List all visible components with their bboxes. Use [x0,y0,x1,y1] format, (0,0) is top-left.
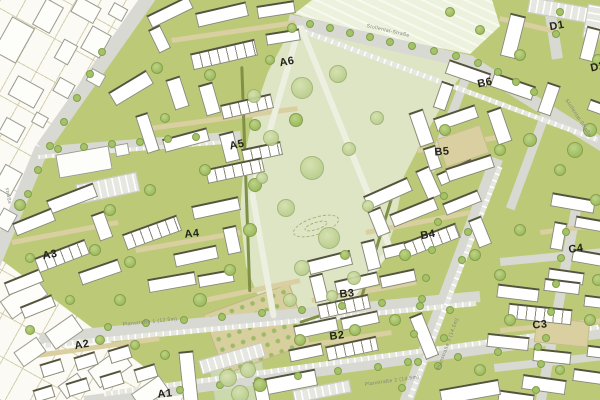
street-tree [366,33,374,41]
block-tree [584,314,596,326]
block-label-c3: C3 [532,318,548,331]
block-tree [95,335,105,345]
street-tree [428,246,436,254]
planned-building [587,99,600,118]
block-tree [25,253,35,263]
planned-building [146,0,193,28]
existing-building [70,0,101,24]
park-tree [362,200,374,212]
street-tree [378,299,386,307]
planned-building [583,295,600,310]
street-tree [24,190,32,198]
street-tree [512,78,520,86]
park-tree [219,369,237,387]
street-tree [54,145,62,153]
block-tree [592,274,600,286]
street-tree [298,306,306,314]
street-tree [530,88,538,96]
street-tree [60,118,68,126]
planned-building [191,196,241,220]
block-tree [590,194,600,206]
block-label-b6: B6 [476,76,493,91]
street-tree [386,38,394,46]
street-tree [404,358,412,366]
block-tree [399,249,411,261]
street-tree [474,59,482,67]
street-tree [334,367,342,375]
street-tree [258,309,266,317]
block-label-b2: B2 [329,329,346,343]
park-tree [294,260,310,276]
block-tree [474,364,486,376]
block-label-d1: D1 [549,19,566,33]
park-tree [342,142,356,156]
block-tree [25,325,35,335]
block-tree [294,334,306,346]
park-tree [370,111,384,125]
block-tree [567,142,583,158]
block-tree [494,269,506,281]
existing-building [8,75,45,109]
street-tree [374,363,382,371]
planned-building [572,367,600,384]
street-tree [542,334,550,342]
block-tree [265,55,275,65]
block-tree [89,244,101,256]
block-tree [349,324,361,336]
street-tree [338,302,346,310]
street-tree [446,306,454,314]
street-tree [562,228,570,236]
block-tree [475,25,485,35]
existing-building [0,117,26,143]
street-tree [458,256,466,264]
street-tree [108,140,116,148]
street-tree [180,316,188,324]
masterplan-map[interactable]: A1A2A3A4A5A6B2B3B4B5B6C3C4D1D2Stollental… [0,0,600,400]
park-tree [283,293,297,307]
planned-building [496,283,539,302]
park-tree [231,385,249,400]
street-tree [434,218,442,226]
block-label-d2: D2 [589,60,600,75]
block-tree [389,314,401,326]
park-tree [291,77,313,99]
street-tree [398,384,406,392]
block-tree [439,124,451,136]
block-tree [523,133,537,147]
existing-building [54,39,79,66]
street-tree [532,386,540,394]
planned-building [497,389,534,400]
existing-building [32,0,64,34]
block-tree [287,23,297,33]
existing-building [31,111,49,128]
street-tree [410,330,418,338]
street-tree [218,313,226,321]
street-tree [46,142,54,150]
street-tree [552,280,560,288]
street-tree [34,166,42,174]
block-label-b4: B4 [420,228,437,242]
park-tree [326,290,338,302]
planned-building [197,82,220,117]
street-tree [192,133,200,141]
street-tree [73,94,81,102]
street-tree [494,68,502,76]
park-tree [247,89,261,103]
planned-building [78,259,122,286]
street-tree [176,386,184,394]
street-tree [104,323,112,331]
block-tree [494,144,506,156]
street-tree [306,20,314,28]
street-tree [452,52,460,60]
planned-building [165,75,189,110]
block-tree [104,204,116,216]
street-tree [494,348,502,356]
block-tree [253,378,267,392]
park-tree [256,172,268,184]
street-tree [164,135,172,143]
park-tree [300,156,324,180]
street-tree [537,360,545,368]
planned-building [147,271,197,293]
existing-building [114,143,130,157]
planned-building [195,1,249,27]
block-tree [65,295,75,305]
street-tree [416,302,424,310]
block-label-b5: B5 [434,145,450,158]
street-tree [414,358,422,366]
block-tree [555,365,565,375]
street-tree [80,143,88,151]
block-tree [445,7,455,17]
block-tree [144,184,156,196]
block-label-a2: A2 [74,338,91,352]
street-tree [422,274,430,282]
street-tree [98,48,106,56]
block-tree [554,164,566,176]
planned-building [147,24,170,53]
existing-building [0,16,35,64]
street-tree [326,24,334,32]
block-label-b3: B3 [339,287,355,301]
street-tree [547,308,555,316]
block-tree [14,199,26,211]
park-tree [240,362,256,378]
block-tree [504,314,516,326]
planned-building [415,165,442,200]
park-tree [263,130,279,146]
planned-building [46,182,98,214]
block-tree [469,249,481,261]
planned-building [408,109,434,148]
block-tree [124,256,136,268]
block-tree [160,113,170,123]
block-label-a3: A3 [42,248,59,262]
block-tree [204,69,216,81]
block-tree [151,62,163,74]
street-tree [430,47,438,55]
street-tree [136,138,144,146]
block-tree [289,113,303,127]
street-tree [440,192,448,200]
block-tree [243,223,257,237]
street-tree [556,8,564,16]
park-tree [318,227,340,249]
planned-building [173,245,219,268]
planned-building [39,358,64,378]
street-tree [346,29,354,37]
planned-building [439,379,501,400]
street-tree [454,353,462,361]
street-tree [408,42,416,50]
block-tree [199,164,211,176]
block-label-c4: C4 [568,242,585,256]
block-tree [340,250,350,260]
street-tree [534,343,542,351]
park-tree [329,65,347,83]
block-tree [114,294,126,306]
block-tree [224,264,236,276]
block-tree [249,119,261,131]
street-tree [86,70,94,78]
block-tree [193,293,207,307]
block-label-a6: A6 [279,55,296,69]
block-tree [160,350,170,360]
street-tree [557,254,565,262]
street-tree [294,372,302,380]
planned-building [108,70,154,106]
planned-building [33,384,56,400]
terraced-house-row [190,38,258,69]
park-tree [277,199,295,217]
block-label-a4: A4 [184,227,200,241]
block-label-a1: A1 [157,387,173,400]
street-tree [464,228,472,236]
block-tree [514,49,526,61]
planned-building [521,374,567,395]
block-tree [130,340,140,350]
park-tree [347,271,361,285]
block-tree [514,224,526,236]
